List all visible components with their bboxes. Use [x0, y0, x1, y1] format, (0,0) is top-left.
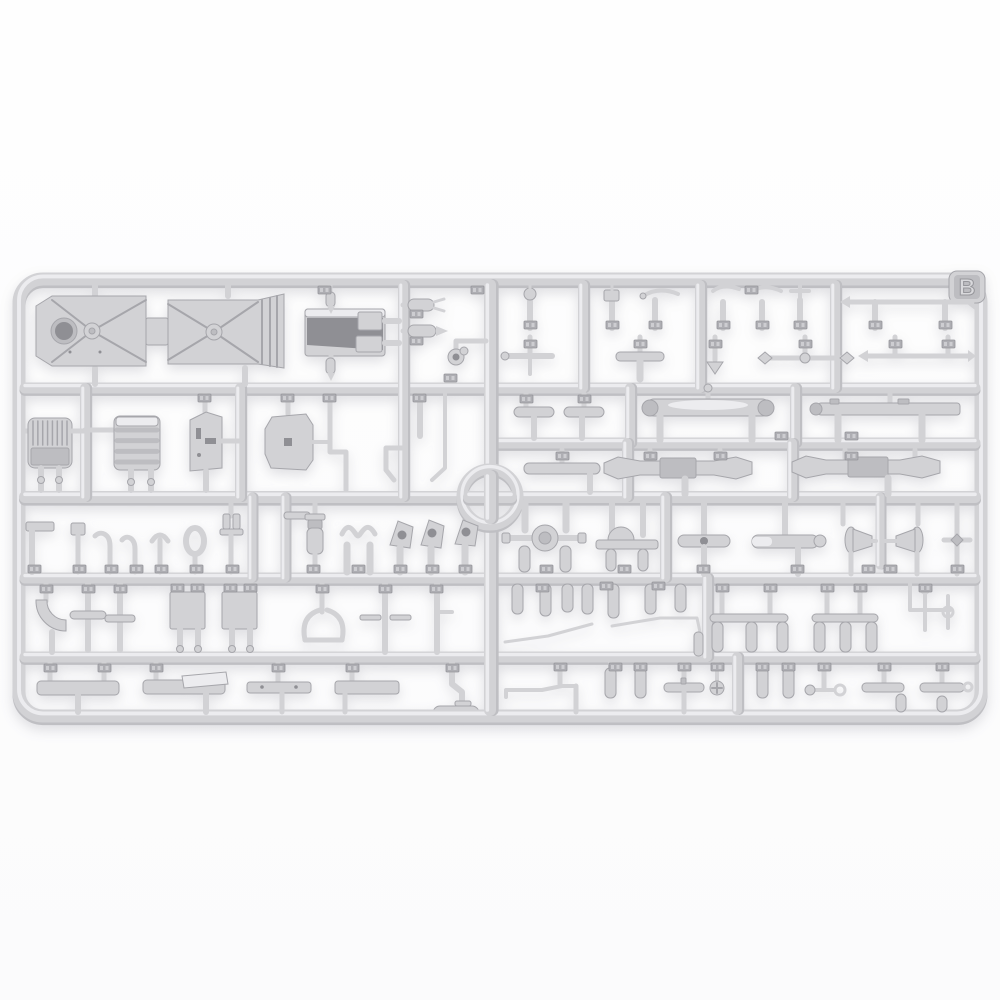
part-number-tag — [198, 394, 211, 402]
part-number-tag — [471, 286, 484, 294]
part-number-tag — [354, 666, 357, 670]
part-number-tag — [884, 565, 897, 573]
part-number-tag — [756, 663, 769, 671]
part-number-tag — [944, 665, 947, 669]
part-number-tag — [479, 288, 482, 292]
part-number-tag — [651, 323, 654, 327]
part-number-tag — [807, 342, 810, 346]
sprue-part — [211, 329, 217, 335]
part-number-tag — [826, 665, 829, 669]
part-number-tag — [717, 321, 730, 329]
part-number-tag — [556, 665, 559, 669]
part-number-tag — [379, 585, 392, 593]
part-number-tag — [348, 666, 351, 670]
sprue-part — [89, 328, 95, 334]
sprue-part — [358, 312, 382, 330]
sprue-part — [223, 514, 230, 529]
sprue-part — [758, 352, 772, 364]
sprue-part — [964, 683, 972, 691]
part-number-tag — [660, 584, 663, 588]
shock-absorber — [307, 528, 323, 554]
part-number-tag — [522, 397, 525, 401]
part-number-tag — [947, 323, 950, 327]
part-number-tag — [116, 587, 119, 591]
part-number-tag — [620, 567, 623, 571]
part-number-tag — [467, 567, 470, 571]
sprue-part — [38, 477, 45, 484]
sprue-part — [434, 308, 444, 311]
part-number-tag — [939, 321, 952, 329]
part-number-tag — [360, 567, 363, 571]
part-number-tag — [526, 323, 529, 327]
sprue-part — [853, 529, 872, 552]
part-number-tag — [699, 567, 702, 571]
part-number-tag — [634, 340, 647, 348]
sprue-part — [428, 529, 437, 538]
part-number-tag — [226, 565, 239, 573]
sprue-part — [398, 531, 407, 540]
part-number-tag — [206, 396, 209, 400]
sprue-part — [196, 428, 201, 439]
sprue-part — [757, 668, 768, 698]
sprue-part — [408, 299, 434, 311]
sprue-part — [800, 353, 810, 363]
sprue-part — [668, 400, 748, 410]
part-number-tag — [892, 567, 895, 571]
part-number-tag — [200, 396, 203, 400]
part-number-tag — [845, 432, 858, 440]
sprue-part — [260, 685, 264, 689]
part-number-tag — [73, 565, 86, 573]
part-number-tag — [820, 665, 823, 669]
sprue-part — [805, 685, 815, 695]
part-number-tag — [421, 396, 424, 400]
part-number-tag — [192, 567, 195, 571]
sprue-part — [455, 701, 471, 706]
part-number-tag — [829, 586, 832, 590]
part-number-tag — [944, 342, 947, 346]
part-number-tag — [796, 323, 799, 327]
part-number-tag — [544, 586, 547, 590]
part-number-tag — [878, 663, 891, 671]
sprue-part — [408, 325, 436, 337]
wire-rod — [612, 618, 700, 632]
winged-pin — [707, 362, 723, 374]
manifold — [710, 614, 788, 622]
blade-rod — [390, 615, 411, 620]
running-board — [247, 682, 311, 693]
part-number-tag — [280, 666, 283, 670]
part-number-tag — [711, 663, 724, 671]
part-number-tag — [244, 584, 257, 592]
part-number-tag — [854, 584, 867, 592]
part-number-tag — [853, 434, 856, 438]
part-number-tag — [600, 582, 613, 590]
part-number-tag — [410, 337, 423, 345]
sprue-part — [640, 293, 646, 299]
foot-bar — [920, 683, 964, 692]
part-number-tag — [40, 585, 53, 593]
part-number-tag — [42, 587, 45, 591]
part-number-tag — [75, 567, 78, 571]
part-number-tag — [864, 567, 867, 571]
part-number-tag — [157, 567, 160, 571]
part-number-tag — [856, 586, 859, 590]
part-number-tag — [862, 565, 875, 573]
part-number-tag — [722, 454, 725, 458]
part-number-tag — [558, 454, 561, 458]
part-number-tag — [618, 565, 631, 573]
sprue-part — [197, 453, 201, 457]
part-number-tag — [847, 454, 850, 458]
sprue-part — [660, 458, 696, 478]
part-number-tag — [717, 342, 720, 346]
part-number-tag — [556, 452, 569, 460]
part-number-tag — [766, 586, 769, 590]
sprue-part — [830, 399, 839, 404]
part-number-tag — [714, 452, 727, 460]
sprue-part — [814, 622, 825, 652]
part-number-tag — [150, 664, 163, 672]
part-number-tag — [686, 665, 689, 669]
part-number-tag — [158, 666, 161, 670]
part-number-tag — [105, 565, 118, 573]
part-number-tag — [606, 321, 619, 329]
sprue-part — [675, 584, 686, 612]
part-number-tag — [764, 665, 767, 669]
part-number-tag — [352, 565, 365, 573]
part-number-tag — [938, 665, 941, 669]
control-rod — [713, 286, 739, 291]
sprue-part — [835, 685, 845, 695]
part-number-tag — [636, 665, 639, 669]
manifold — [812, 614, 878, 622]
part-number-tag — [84, 587, 87, 591]
fender — [36, 600, 66, 631]
sprue-part — [462, 528, 471, 537]
sprue-part — [560, 546, 571, 572]
sprue-part — [578, 533, 586, 543]
part-number-tag — [48, 587, 51, 591]
part-number-tag — [724, 586, 727, 590]
sprue-part — [681, 678, 686, 684]
axle-hump — [596, 540, 658, 549]
part-number-tag — [412, 312, 415, 316]
part-number-tag — [847, 434, 850, 438]
part-number-tag — [461, 567, 464, 571]
part-number-tag — [520, 395, 533, 403]
part-number-tag — [608, 323, 611, 327]
lever-post — [604, 290, 619, 301]
part-number-tag — [82, 585, 95, 593]
sprue-part — [326, 358, 335, 374]
part-number-tag — [758, 323, 761, 327]
part-number-tag — [783, 434, 786, 438]
part-number-tag — [678, 663, 691, 671]
part-number-tag — [709, 340, 722, 348]
part-number-tag — [434, 567, 437, 571]
sprue-part — [195, 646, 202, 653]
part-number-tag — [36, 567, 39, 571]
part-number-tag — [862, 586, 865, 590]
part-number-tag — [719, 665, 722, 669]
sprue-part — [247, 646, 254, 653]
part-number-tag — [580, 397, 583, 401]
part-number-tag — [228, 567, 231, 571]
sprue-letter-label: B — [959, 274, 976, 300]
part-number-tag — [426, 565, 439, 573]
part-number-tag — [775, 432, 788, 440]
part-number-tag — [823, 586, 826, 590]
part-number-tag — [799, 567, 802, 571]
part-number-tag — [764, 584, 777, 592]
part-number-tag — [90, 587, 93, 591]
part-number-tag — [716, 454, 719, 458]
part-number-tag — [554, 663, 567, 671]
part-number-tag — [959, 567, 962, 571]
part-number-tag — [198, 567, 201, 571]
part-number-tag — [402, 567, 405, 571]
part-number-tag — [802, 323, 805, 327]
part-number-tag — [107, 567, 110, 571]
sprue-part — [512, 584, 523, 614]
part-number-tag — [289, 396, 292, 400]
part-number-tag — [614, 323, 617, 327]
part-number-tag — [532, 323, 535, 327]
part-number-tag — [46, 666, 49, 670]
part-number-tag — [654, 584, 657, 588]
sprue-part — [777, 622, 788, 652]
part-number-tag — [81, 567, 84, 571]
sprue-part — [635, 668, 646, 698]
part-number-tag — [711, 342, 714, 346]
part-number-tag — [526, 342, 529, 346]
sprue-part — [116, 417, 158, 426]
sprue-part — [501, 352, 509, 360]
part-number-tag — [199, 586, 202, 590]
part-number-tag — [272, 664, 285, 672]
part-number-tag — [889, 340, 902, 348]
part-number-tag — [578, 395, 591, 403]
part-number-tag — [602, 584, 605, 588]
part-number-tag — [919, 584, 932, 592]
sprue-part — [519, 546, 530, 572]
part-number-tag — [44, 664, 57, 672]
part-number-tag — [524, 340, 537, 348]
part-number-tag — [697, 565, 710, 573]
sprue-part — [434, 299, 444, 302]
sprue-part — [858, 350, 868, 362]
part-number-tag — [179, 586, 182, 590]
sprue-part — [840, 622, 851, 652]
part-number-tag — [538, 586, 541, 590]
part-number-tag — [921, 586, 924, 590]
sprue-part — [436, 326, 448, 336]
sprue-part — [562, 584, 573, 612]
sprue-part — [294, 685, 298, 689]
sprue-part — [898, 399, 909, 404]
part-number-tag — [30, 567, 33, 571]
sprue-part — [752, 537, 772, 546]
part-number-tag — [28, 565, 41, 573]
sprue-part — [866, 622, 877, 652]
part-number-tag — [155, 565, 168, 573]
part-number-tag — [719, 323, 722, 327]
part-number-tag — [586, 397, 589, 401]
part-number-tag — [725, 323, 728, 327]
part-number-tag — [821, 584, 834, 592]
part-number-tag — [897, 342, 900, 346]
part-number-tag — [459, 565, 472, 573]
part-number-tag — [745, 286, 758, 294]
axle-lever — [70, 611, 106, 619]
part-number-tag — [642, 665, 645, 669]
sprue-part — [896, 694, 906, 712]
part-number-tag — [562, 665, 565, 669]
eyelet — [186, 528, 204, 554]
part-number-tag — [950, 342, 953, 346]
part-number-tag — [611, 665, 614, 669]
part-number-tag — [320, 288, 323, 292]
part-number-tag — [412, 339, 415, 343]
part-number-tag — [634, 663, 647, 671]
sprue-part — [712, 622, 723, 652]
part-number-tag — [346, 664, 359, 672]
part-number-tag — [138, 567, 141, 571]
part-number-tag — [649, 321, 662, 329]
part-number-tag — [644, 452, 657, 460]
part-number-tag — [171, 584, 184, 592]
part-number-tag — [794, 321, 807, 329]
part-number-tag — [224, 584, 237, 592]
part-number-tag — [446, 376, 449, 380]
sprue-part — [56, 477, 63, 484]
part-number-tag — [446, 664, 459, 672]
part-number-tag — [716, 584, 729, 592]
part-number-tag — [428, 567, 431, 571]
sprue-part — [783, 668, 794, 698]
part-number-tag — [191, 584, 204, 592]
part-number-tag — [877, 323, 880, 327]
part-number-tag — [387, 587, 390, 591]
part-number-tag — [941, 323, 944, 327]
part-number-tag — [818, 663, 831, 671]
part-number-tag — [252, 586, 255, 590]
part-number-tag — [790, 665, 793, 669]
part-number-tag — [540, 565, 553, 573]
part-number-tag — [193, 586, 196, 590]
sprue-part — [99, 351, 102, 354]
sprue-shapes — [19, 271, 985, 722]
part-number-tag — [307, 565, 320, 573]
sprue-part — [453, 354, 460, 361]
part-number-tag — [318, 286, 331, 294]
part-number-tag — [325, 396, 328, 400]
part-number-tag — [617, 665, 620, 669]
part-number-tag — [764, 323, 767, 327]
part-number-tag — [473, 288, 476, 292]
sprue-part — [638, 549, 648, 571]
part-number-tag — [871, 323, 874, 327]
sprue-part — [694, 632, 703, 656]
wire-rod — [505, 624, 592, 642]
hatch-plate — [170, 592, 205, 629]
sprue-part — [305, 514, 325, 520]
sprue-part — [128, 479, 135, 486]
sprue-part — [460, 347, 468, 355]
part-number-tag — [528, 397, 531, 401]
part-number-tag — [747, 288, 750, 292]
sprue-part — [539, 532, 551, 544]
part-number-tag — [782, 663, 795, 671]
sprue-part — [582, 584, 593, 614]
part-number-tag — [936, 663, 949, 671]
sprue-part — [746, 622, 757, 652]
sprue-part — [605, 668, 616, 698]
sprue-part — [284, 438, 292, 446]
part-number-tag — [413, 394, 426, 402]
part-number-tag — [642, 342, 645, 346]
part-number-tag — [274, 666, 277, 670]
part-number-tag — [772, 586, 775, 590]
part-number-tag — [324, 587, 327, 591]
part-number-tag — [52, 666, 55, 670]
part-number-tag — [756, 321, 769, 329]
part-number-tag — [283, 396, 286, 400]
sprue-part — [951, 534, 963, 546]
part-number-tag — [309, 567, 312, 571]
part-number-tag — [927, 586, 930, 590]
part-number-tag — [886, 665, 889, 669]
part-number-tag — [891, 342, 894, 346]
part-number-tag — [942, 340, 955, 348]
part-number-tag — [113, 567, 116, 571]
part-number-tag — [777, 434, 780, 438]
part-number-tag — [226, 586, 229, 590]
sprue-part — [233, 514, 240, 529]
part-number-tag — [542, 567, 545, 571]
sprue-part — [177, 646, 184, 653]
part-number-tag — [636, 342, 639, 346]
sprue-part — [700, 537, 708, 545]
part-number-tag — [869, 321, 882, 329]
bent-pipe — [330, 396, 346, 490]
part-number-tag — [753, 288, 756, 292]
sprue-part — [502, 533, 510, 543]
sprue-part — [704, 384, 712, 392]
wing-bracket — [327, 610, 343, 640]
sprue-part — [356, 336, 382, 352]
part-number-tag — [163, 567, 166, 571]
part-number-tag — [609, 663, 622, 671]
part-number-tag — [452, 376, 455, 380]
part-number-tag — [106, 666, 109, 670]
part-number-tag — [418, 312, 421, 316]
part-number-tag — [281, 394, 294, 402]
part-number-tag — [132, 567, 135, 571]
part-number-tag — [246, 586, 249, 590]
sprue-part — [896, 529, 915, 552]
panel-connector — [146, 318, 168, 345]
sprue-part — [327, 373, 335, 381]
part-number-tag — [381, 587, 384, 591]
part-number-tag — [713, 665, 716, 669]
part-number-tag — [718, 586, 721, 590]
wire-rod — [506, 686, 576, 697]
part-number-tag — [652, 582, 665, 590]
part-number-tag — [394, 565, 407, 573]
wing-bracket — [304, 610, 320, 640]
